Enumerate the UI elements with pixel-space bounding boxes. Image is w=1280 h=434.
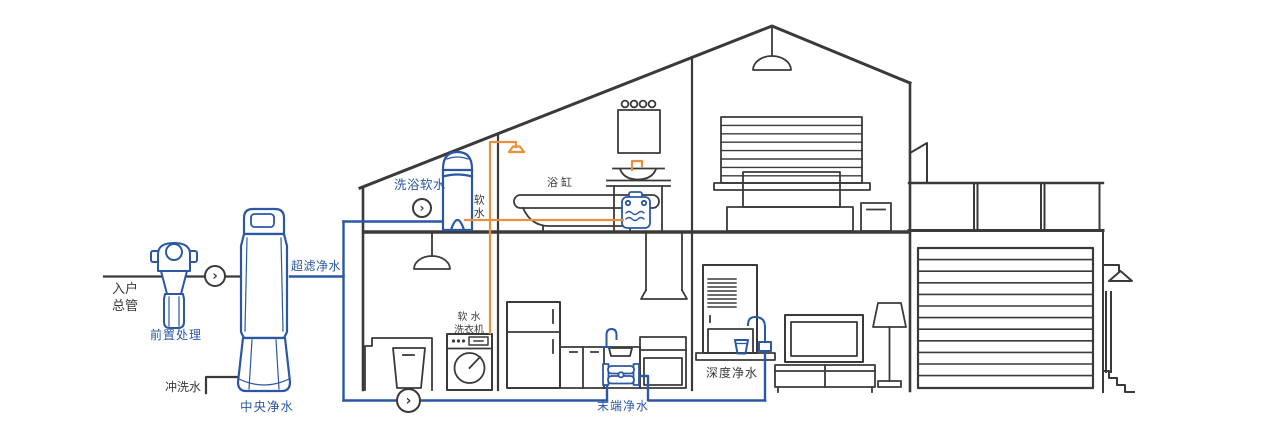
nightstand — [861, 203, 891, 231]
central-purification-label: 中央净水 — [240, 399, 294, 415]
inlet-main-label: 入户 总管 — [112, 282, 138, 316]
downpipe — [1106, 292, 1111, 372]
bedroom-furniture — [714, 28, 891, 231]
purifier-stand — [696, 353, 775, 360]
vanity-counter — [607, 181, 670, 187]
range-hood — [641, 290, 687, 299]
purified-water-pipes — [290, 222, 765, 401]
central-purifier-device — [238, 209, 290, 391]
wall-lamp-shade — [1109, 271, 1132, 281]
railing-posts — [974, 183, 1100, 230]
inlet-label-line2: 总管 — [112, 299, 138, 316]
window-blinds — [721, 125, 862, 175]
floor-lamp-base — [878, 381, 901, 387]
shower-pipe — [490, 142, 516, 220]
diagram-line-art — [0, 0, 1280, 434]
purifier-vent-grille — [708, 279, 736, 307]
bed — [727, 207, 853, 231]
window-sill — [714, 183, 870, 190]
flow-arrow-icon: › — [406, 394, 412, 408]
flush-water-pipe — [206, 377, 238, 393]
washer-label-line2: 洗衣机 — [445, 324, 493, 337]
laundry-basin — [393, 348, 425, 388]
vanity-sink — [620, 169, 656, 180]
bath-softener-device — [443, 152, 472, 230]
flow-arrow-badge-inlet: › — [204, 265, 226, 287]
kitchen-faucet — [603, 329, 617, 347]
bathroom-mirror — [618, 110, 660, 153]
refrigerator — [507, 302, 560, 388]
oven-door — [644, 358, 682, 385]
house-water-system-diagram: › › › 入户 总管 前置处理 冲洗水 中央净水 超滤净水 洗浴软水 软水 浴… — [0, 0, 1280, 434]
bathtub-label: 浴缸 — [547, 176, 575, 190]
range-hood-duct — [646, 232, 682, 290]
flush-water-label: 冲洗水 — [165, 380, 201, 396]
washer-label-line1: 软 水 — [445, 311, 493, 324]
vanity-cabinet-device — [622, 192, 650, 228]
flow-arrow-icon: › — [420, 202, 425, 214]
mirror-light — [640, 101, 647, 108]
pre-treatment-label: 前置处理 — [150, 328, 202, 344]
water-cup — [735, 340, 748, 354]
laundry-lamp-shade — [414, 256, 450, 269]
steps — [1103, 371, 1134, 392]
flow-arrow-badge-softener: › — [412, 198, 432, 218]
soft-water-label: 软水 — [471, 194, 485, 220]
kitchen-sink — [609, 348, 632, 356]
pendant-lamp-shade — [753, 56, 791, 70]
garage-terrace — [909, 143, 1134, 392]
inlet-label-line1: 入户 — [112, 282, 138, 299]
ultrafiltration-label: 超滤净水 — [291, 259, 341, 275]
mirror-light — [649, 101, 656, 108]
wall-lamp-bracket — [1103, 265, 1119, 271]
tv-screen — [791, 322, 857, 356]
deep-purification-label: 深度净水 — [706, 366, 758, 382]
kitchen — [507, 232, 687, 388]
flow-arrow-icon: › — [212, 270, 217, 283]
floor-lamp-shade — [873, 303, 906, 327]
garage-door-slats — [918, 260, 1093, 376]
bath-softening-label: 洗浴软水 — [394, 177, 446, 193]
under-sink-ro-device — [603, 364, 639, 385]
mirror-light — [622, 101, 629, 108]
pre-filter-device — [151, 243, 197, 328]
flow-arrow-badge-ground: › — [396, 388, 421, 413]
shower-head — [509, 147, 524, 153]
soft-water-washer-label: 软 水 洗衣机 — [445, 311, 493, 337]
terminal-purification-label: 末端净水 — [597, 399, 649, 415]
mirror-light — [631, 101, 638, 108]
soft-water-pipes — [465, 142, 642, 333]
